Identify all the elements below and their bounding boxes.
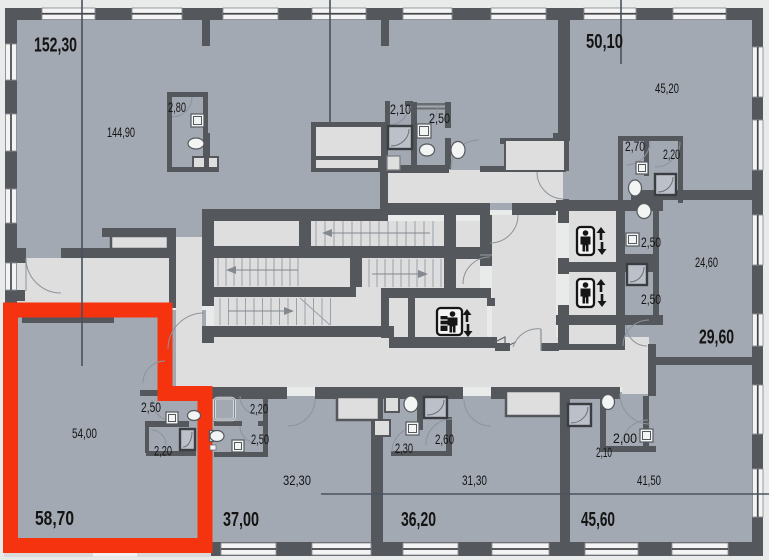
svg-text:2,20: 2,20 — [663, 147, 680, 162]
svg-text:37,00: 37,00 — [223, 509, 259, 531]
svg-text:41,50: 41,50 — [637, 473, 661, 488]
svg-text:152,30: 152,30 — [34, 35, 77, 57]
svg-text:2,20: 2,20 — [250, 402, 268, 417]
svg-text:2,20: 2,20 — [154, 444, 172, 459]
svg-text:2,80: 2,80 — [168, 100, 186, 115]
svg-text:2,50: 2,50 — [641, 292, 661, 307]
svg-text:2,50: 2,50 — [641, 235, 661, 250]
svg-text:31,30: 31,30 — [462, 473, 487, 488]
svg-text:2,00: 2,00 — [613, 431, 637, 446]
svg-text:2,50: 2,50 — [251, 432, 269, 447]
svg-text:2,50: 2,50 — [141, 400, 161, 415]
svg-text:144,90: 144,90 — [107, 125, 135, 140]
svg-text:45,60: 45,60 — [581, 509, 615, 531]
svg-text:54,00: 54,00 — [72, 426, 97, 441]
svg-text:36,20: 36,20 — [401, 509, 436, 531]
svg-text:32,30: 32,30 — [283, 473, 311, 488]
svg-text:2,30: 2,30 — [395, 441, 413, 456]
svg-text:58,70: 58,70 — [35, 508, 74, 530]
svg-text:2,50: 2,50 — [429, 111, 450, 126]
svg-text:45,20: 45,20 — [655, 81, 679, 96]
svg-text:2,10: 2,10 — [390, 102, 411, 117]
svg-text:2,10: 2,10 — [596, 445, 612, 460]
svg-text:29,60: 29,60 — [699, 327, 734, 349]
svg-text:2,60: 2,60 — [435, 432, 454, 447]
svg-text:24,60: 24,60 — [695, 255, 718, 270]
svg-text:50,10: 50,10 — [586, 31, 623, 53]
svg-text:2,70: 2,70 — [625, 139, 645, 154]
